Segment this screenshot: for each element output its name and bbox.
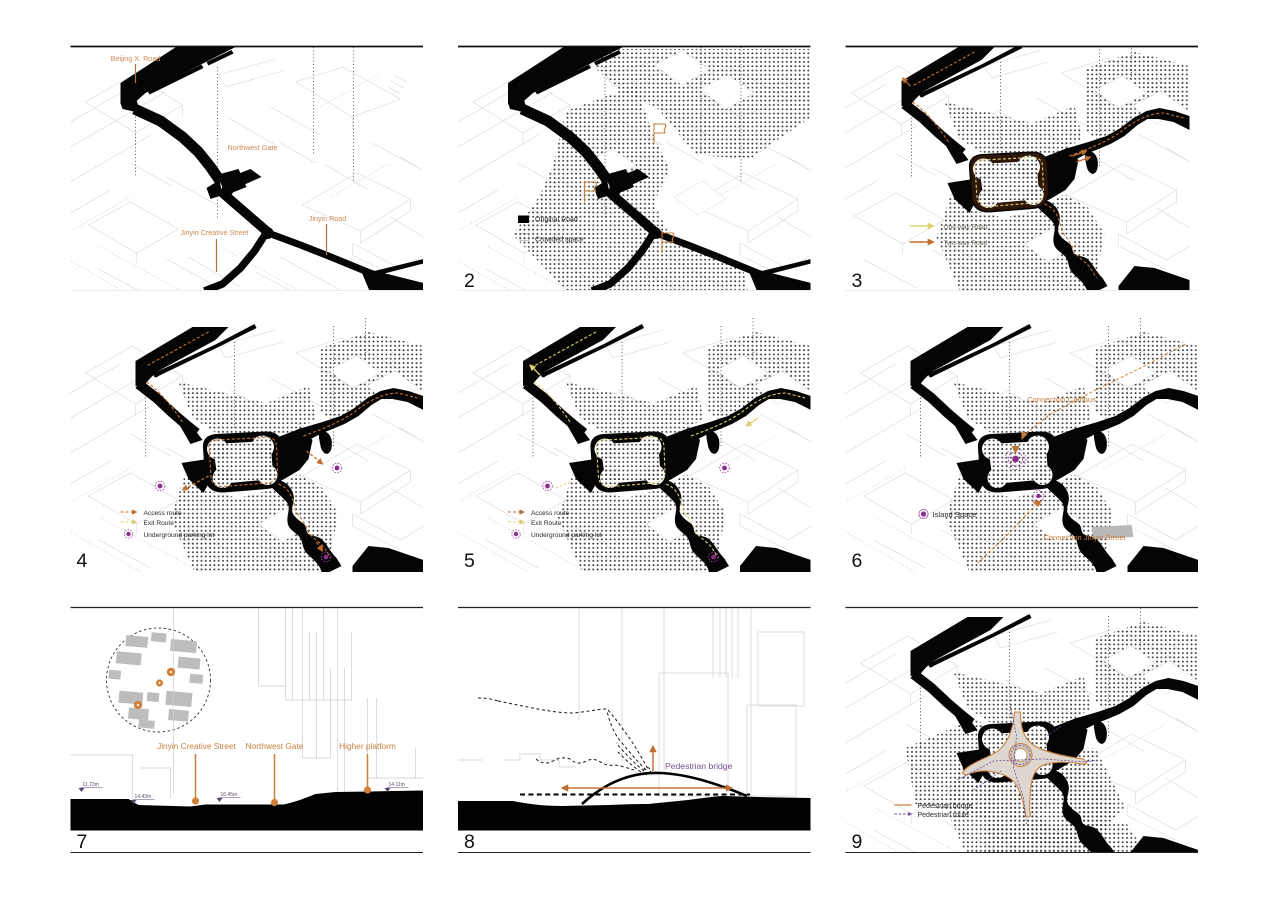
svg-text:Access route: Access route <box>144 510 182 517</box>
svg-text:One-way Road: One-way Road <box>944 224 988 231</box>
svg-text:8: 8 <box>464 831 475 853</box>
svg-text:2: 2 <box>464 270 475 292</box>
svg-text:Underground parking lot: Underground parking lot <box>531 532 602 539</box>
svg-text:Jinyin Road: Jinyin Road <box>309 214 347 223</box>
svg-text:Northwest Gate: Northwest Gate <box>228 143 278 152</box>
svg-text:Exit Route: Exit Route <box>144 520 175 527</box>
svg-text:Northwest Gate: Northwest Gate <box>246 741 304 751</box>
svg-text:14.43m: 14.43m <box>135 794 152 800</box>
svg-text:6: 6 <box>852 550 863 572</box>
svg-text:9: 9 <box>852 831 863 853</box>
svg-text:Pedestrian route: Pedestrian route <box>918 812 969 819</box>
svg-text:Crowded space: Crowded space <box>535 237 584 244</box>
svg-text:16.45m: 16.45m <box>221 792 238 798</box>
svg-text:Connection Jinyin Street: Connection Jinyin Street <box>1043 533 1126 542</box>
svg-text:Pedestrian bridge: Pedestrian bridge <box>665 761 733 771</box>
svg-text:Underground parking lot: Underground parking lot <box>144 532 215 539</box>
svg-text:Access route: Access route <box>531 510 569 517</box>
svg-text:4: 4 <box>77 550 88 572</box>
svg-text:Island Space: Island Space <box>933 510 977 519</box>
svg-text:Pedestrian bridge: Pedestrian bridge <box>918 803 973 810</box>
svg-text:Connection Campus: Connection Campus <box>1027 395 1096 404</box>
svg-text:5: 5 <box>464 550 475 572</box>
svg-text:14.11m: 14.11m <box>389 782 405 788</box>
svg-text:Two-way Road: Two-way Road <box>944 240 988 247</box>
svg-text:11.73m: 11.73m <box>83 782 99 788</box>
svg-text:Higher platform: Higher platform <box>339 741 396 751</box>
svg-text:Jinyin Creative Street: Jinyin Creative Street <box>157 741 237 751</box>
svg-text:7: 7 <box>77 831 88 853</box>
svg-text:Original Road: Original Road <box>535 217 578 224</box>
svg-text:Jinyin Creative Street: Jinyin Creative Street <box>180 228 248 237</box>
svg-text:3: 3 <box>852 270 863 292</box>
svg-text:Exit Route: Exit Route <box>531 520 562 527</box>
svg-text:Beijing X. Road: Beijing X. Road <box>111 54 161 63</box>
